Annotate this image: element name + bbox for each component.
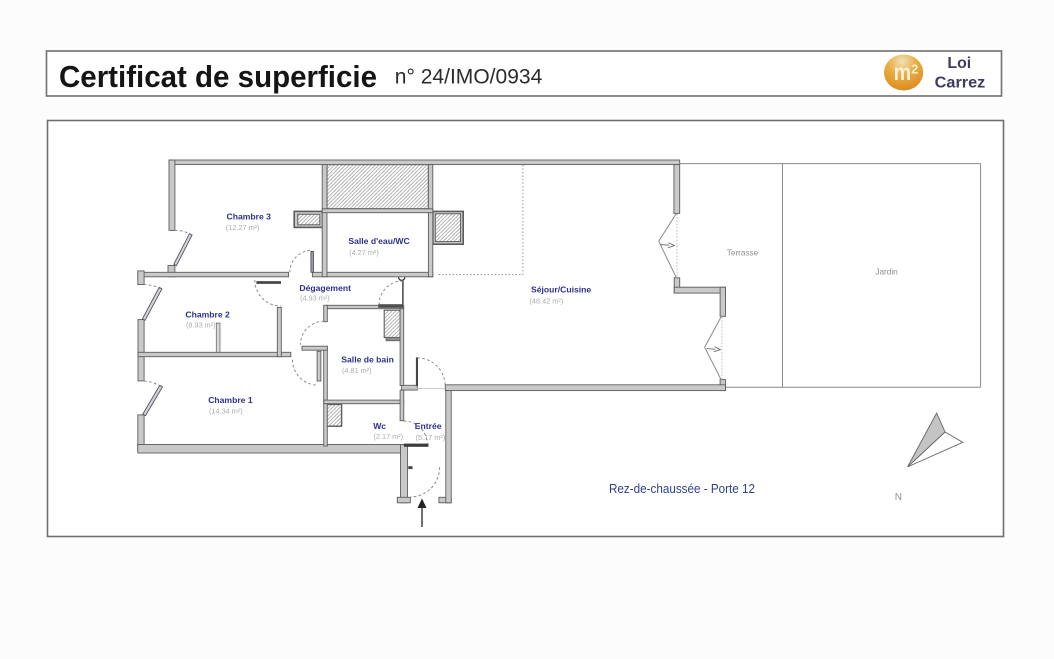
svg-text:Carrez: Carrez bbox=[935, 75, 986, 92]
svg-text:m: m bbox=[894, 59, 912, 85]
svg-text:Chambre 1: Chambre 1 bbox=[208, 395, 253, 405]
svg-text:(14.34 m²): (14.34 m²) bbox=[209, 407, 243, 416]
svg-text:Loi: Loi bbox=[947, 55, 971, 72]
svg-text:(4.93 m²): (4.93 m²) bbox=[300, 294, 330, 303]
svg-text:(12.27 m²): (12.27 m²) bbox=[226, 223, 260, 232]
svg-text:(4.27 m²): (4.27 m²) bbox=[349, 248, 379, 257]
svg-text:(5.17 m²): (5.17 m²) bbox=[416, 433, 446, 442]
svg-text:Chambre 3: Chambre 3 bbox=[227, 212, 272, 222]
svg-text:(2.17 m²): (2.17 m²) bbox=[374, 432, 404, 441]
svg-text:(48.42 m²): (48.42 m²) bbox=[530, 297, 564, 306]
svg-text:Terrasse: Terrasse bbox=[727, 249, 759, 258]
svg-text:2: 2 bbox=[911, 62, 918, 76]
svg-text:Salle de bain: Salle de bain bbox=[341, 355, 394, 365]
svg-text:Certificat de superficie: Certificat de superficie bbox=[59, 60, 377, 94]
svg-text:Jardin: Jardin bbox=[875, 267, 898, 276]
svg-text:(4.81 m²): (4.81 m²) bbox=[342, 366, 372, 375]
svg-text:Dégagement: Dégagement bbox=[299, 283, 351, 293]
svg-text:Entrée: Entrée bbox=[415, 421, 442, 431]
svg-text:Chambre 2: Chambre 2 bbox=[185, 310, 230, 320]
svg-text:Salle d'eau/WC: Salle d'eau/WC bbox=[348, 236, 409, 246]
svg-text:n° 24/IMO/0934: n° 24/IMO/0934 bbox=[395, 65, 543, 88]
svg-text:(8.93 m²): (8.93 m²) bbox=[186, 321, 216, 330]
svg-text:N: N bbox=[895, 492, 902, 503]
svg-text:Rez-de-chaussée - Porte 12: Rez-de-chaussée - Porte 12 bbox=[609, 482, 755, 496]
svg-text:Séjour/Cuisine: Séjour/Cuisine bbox=[531, 285, 591, 295]
svg-text:Wc: Wc bbox=[373, 421, 386, 431]
